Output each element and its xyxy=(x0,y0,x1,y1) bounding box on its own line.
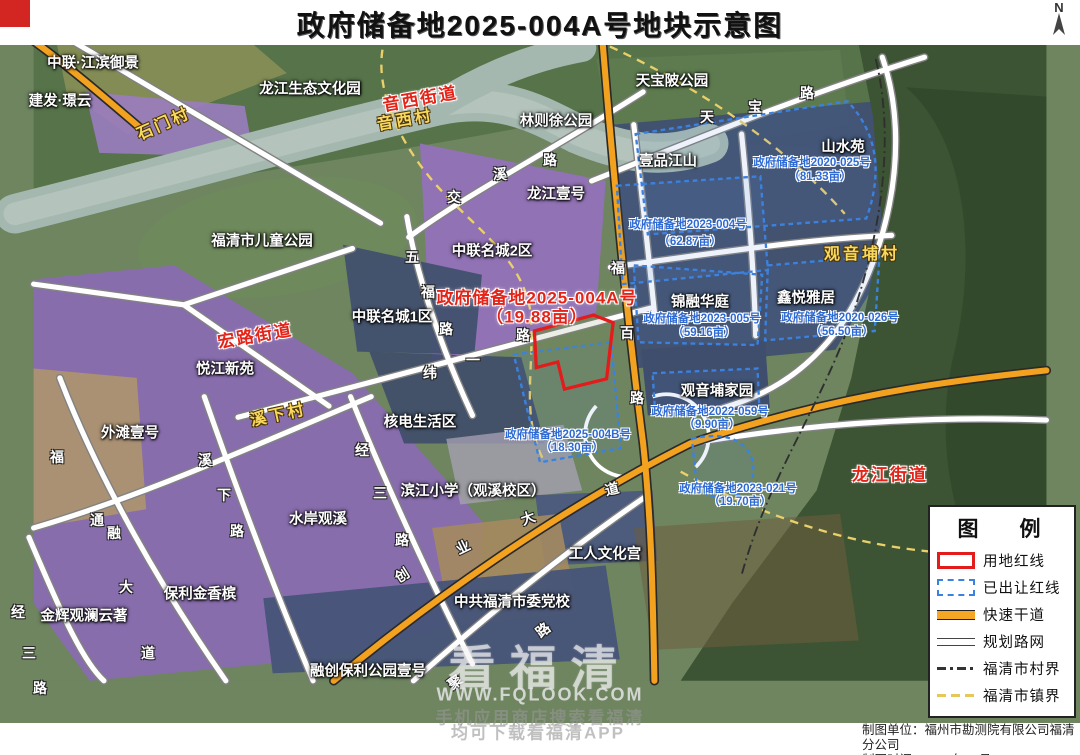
legend-item-label: 福清市村界 xyxy=(983,658,1061,679)
red-outline-swatch-icon xyxy=(937,552,975,569)
north-indicator: N xyxy=(1046,3,1072,43)
dashdot-line-swatch-icon xyxy=(937,667,975,670)
legend: 图 例 用地红线已出让红线快速干道规划路网福清市村界福清市镇界 xyxy=(928,505,1076,718)
map-credits: 制图单位：福州市勘测院有限公司福清分公司 制图时间：2025年08月 xyxy=(862,723,1080,755)
legend-item: 已出让红线 xyxy=(930,574,1074,601)
legend-item-label: 用地红线 xyxy=(983,550,1045,571)
credit-unit: 制图单位：福州市勘测院有限公司福清分公司 xyxy=(862,723,1080,753)
legend-item-label: 规划路网 xyxy=(983,631,1045,652)
legend-title: 图 例 xyxy=(934,513,1074,543)
legend-item: 用地红线 xyxy=(930,547,1074,574)
double-line-swatch-icon xyxy=(937,638,975,646)
blue-dashed-swatch-icon xyxy=(937,579,975,596)
north-label: N xyxy=(1046,3,1072,13)
legend-item: 规划路网 xyxy=(930,628,1074,655)
legend-item: 福清市村界 xyxy=(930,655,1074,682)
map-screenshot: 中联·江滨御景建发·璟云龙江生态文化园林则徐公园天宝陂公园壹品江山山水苑福清市儿… xyxy=(0,0,1080,755)
north-arrow-icon xyxy=(1050,13,1068,39)
legend-item: 福清市镇界 xyxy=(930,682,1074,709)
page-title: 政府储备地2025-004A号地块示意图 xyxy=(0,4,1080,44)
yellow-dashed-swatch-icon xyxy=(937,694,975,698)
legend-item: 快速干道 xyxy=(930,601,1074,628)
title-bar: 政府储备地2025-004A号地块示意图 xyxy=(0,0,1080,45)
map-canvas[interactable] xyxy=(0,45,1080,723)
terrain-graphics xyxy=(0,45,1080,723)
legend-item-label: 福清市镇界 xyxy=(983,685,1061,706)
legend-item-label: 快速干道 xyxy=(983,604,1045,625)
orange-line-swatch-icon xyxy=(937,610,975,620)
legend-item-label: 已出让红线 xyxy=(983,577,1061,598)
